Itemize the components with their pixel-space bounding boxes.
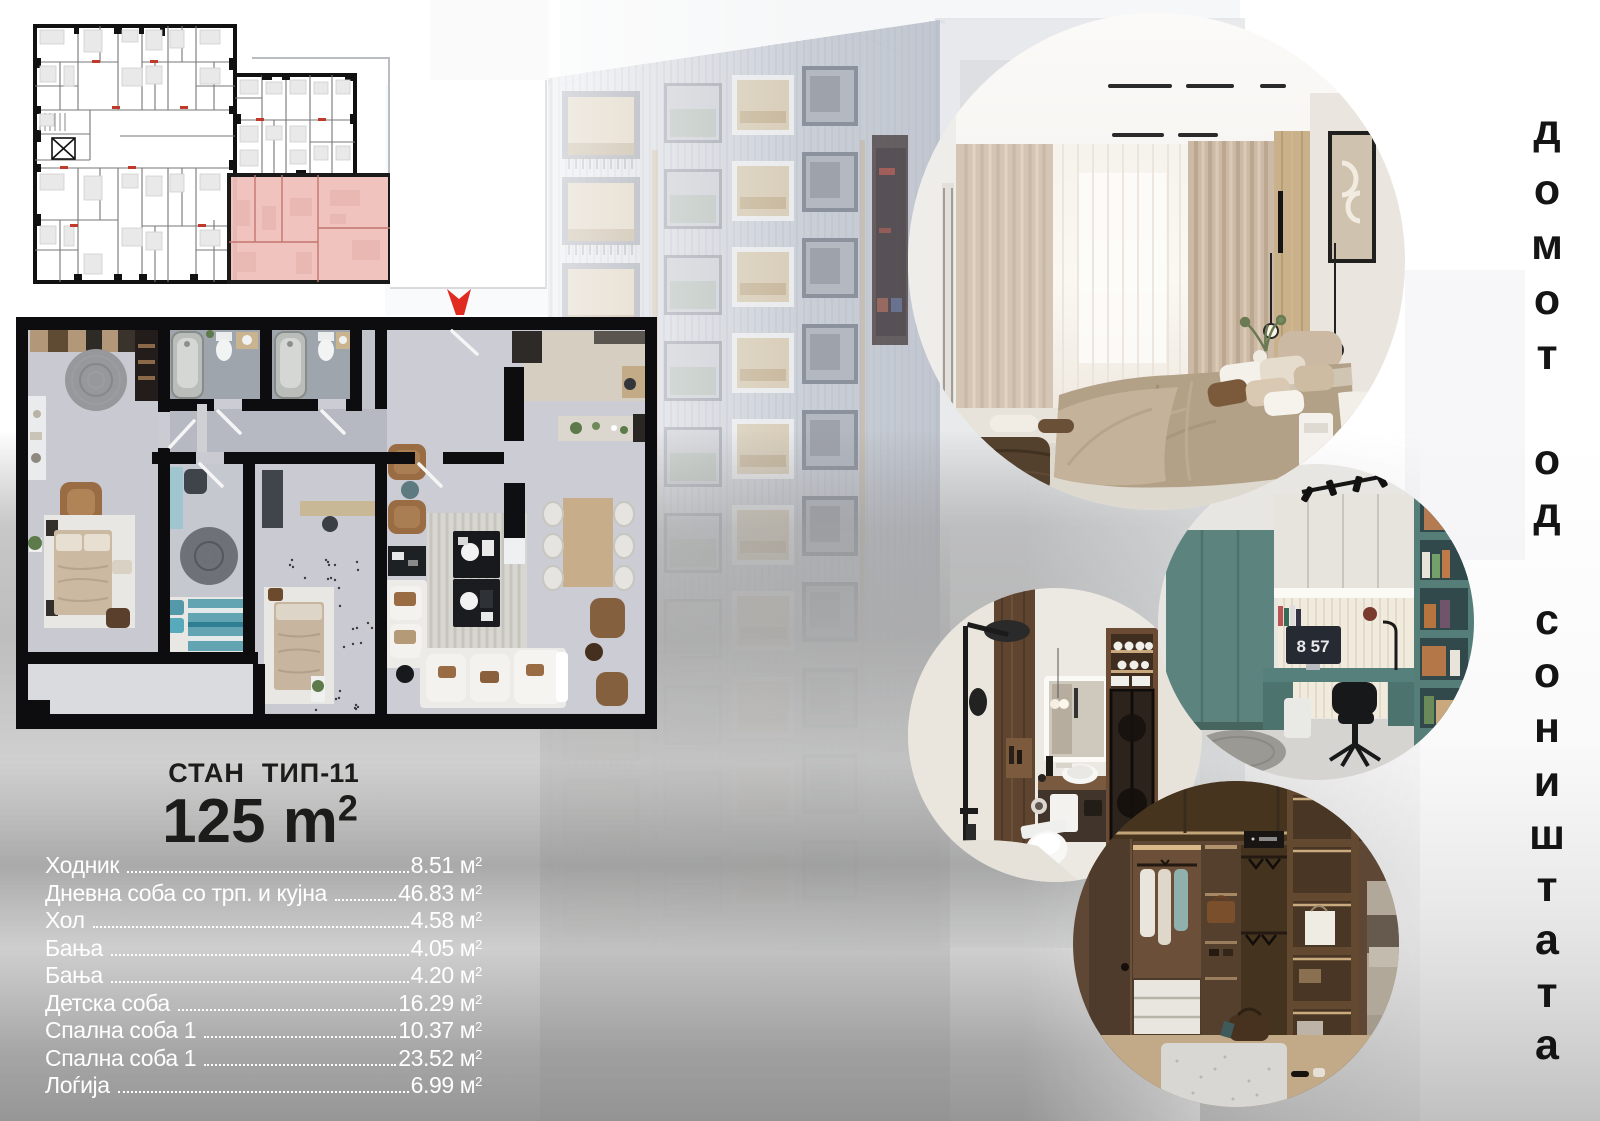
svg-text:8 57: 8 57	[1296, 637, 1329, 656]
